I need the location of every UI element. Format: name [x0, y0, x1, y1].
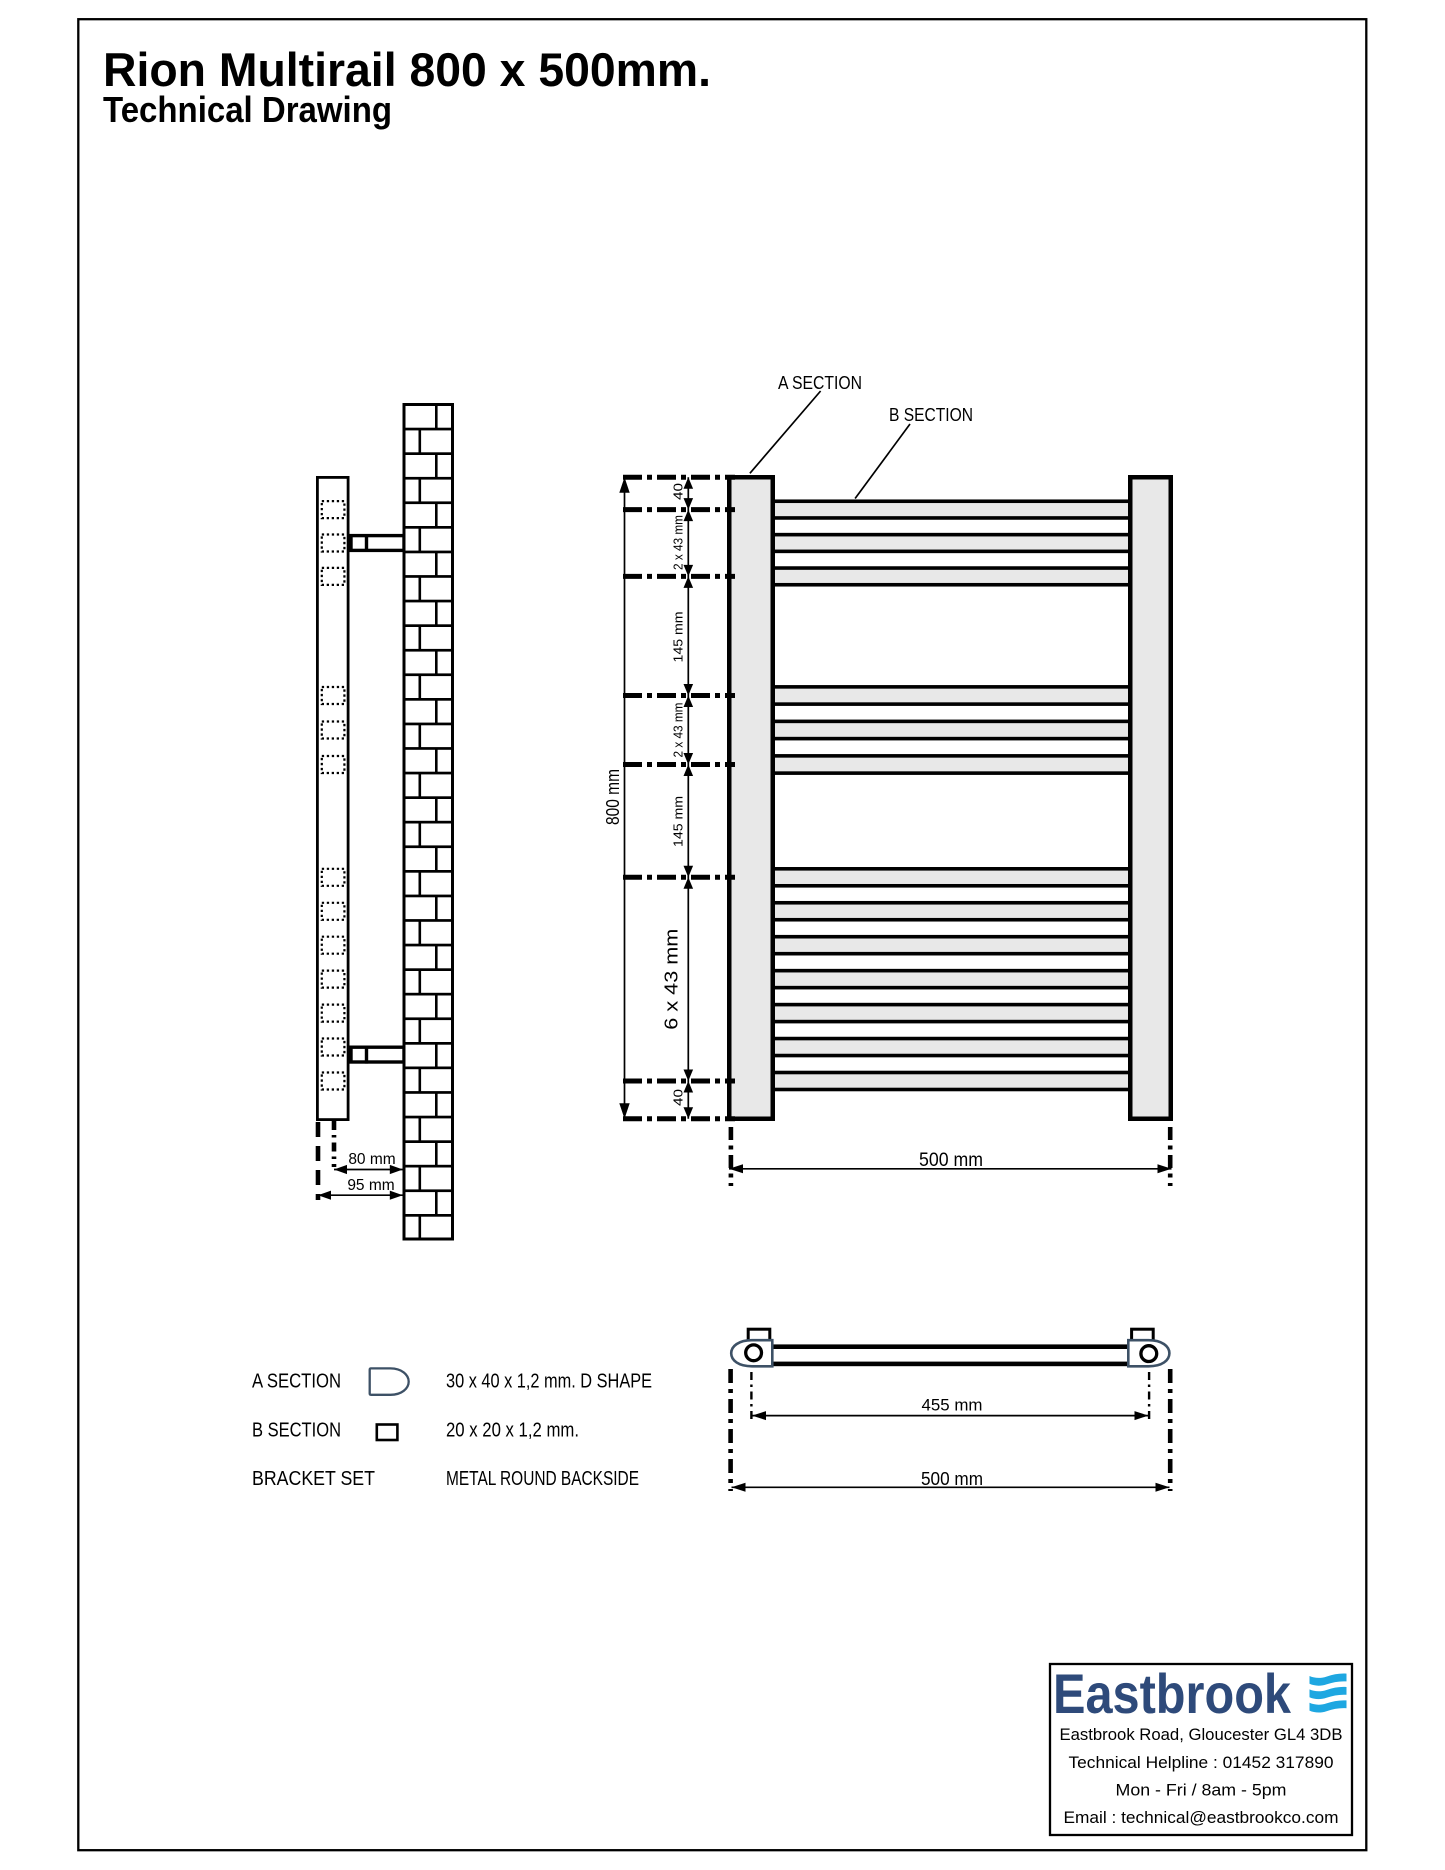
svg-text:Mon - Fri / 8am - 5pm: Mon - Fri / 8am - 5pm: [1116, 1781, 1287, 1800]
svg-text:2 x 43 mm: 2 x 43 mm: [671, 515, 686, 570]
svg-text:B SECTION: B SECTION: [889, 404, 973, 425]
svg-text:500 mm: 500 mm: [919, 1149, 983, 1171]
svg-text:800 mm: 800 mm: [602, 769, 623, 825]
svg-text:40: 40: [671, 483, 686, 500]
svg-text:BRACKET SET: BRACKET SET: [252, 1468, 375, 1490]
svg-text:6 x 43 mm: 6 x 43 mm: [661, 929, 682, 1030]
svg-text:455 mm: 455 mm: [922, 1397, 983, 1415]
svg-text:145 mm: 145 mm: [671, 612, 686, 663]
svg-text:A SECTION: A SECTION: [252, 1371, 341, 1393]
svg-text:A SECTION: A SECTION: [778, 372, 862, 393]
svg-text:Eastbrook: Eastbrook: [1053, 1662, 1292, 1725]
svg-text:B SECTION: B SECTION: [252, 1420, 341, 1442]
svg-text:40: 40: [671, 1089, 686, 1106]
svg-text:145 mm: 145 mm: [671, 796, 686, 847]
svg-text:95 mm: 95 mm: [347, 1177, 394, 1194]
svg-text:500 mm: 500 mm: [921, 1468, 983, 1489]
svg-text:Technical Drawing: Technical Drawing: [103, 89, 392, 130]
svg-text:Eastbrook Road, Gloucester GL4: Eastbrook Road, Gloucester GL4 3DB: [1060, 1725, 1343, 1744]
svg-text:80 mm: 80 mm: [348, 1151, 395, 1168]
svg-text:30 x 40 x 1,2 mm. D SHAPE: 30 x 40 x 1,2 mm. D SHAPE: [446, 1371, 652, 1393]
svg-text:Technical Helpline : 01452 317: Technical Helpline : 01452 317890: [1069, 1753, 1334, 1772]
svg-text:METAL ROUND BACKSIDE: METAL ROUND BACKSIDE: [446, 1468, 639, 1490]
svg-text:2 x 43 mm: 2 x 43 mm: [671, 703, 686, 758]
svg-text:20 x 20 x 1,2 mm.: 20 x 20 x 1,2 mm.: [446, 1420, 579, 1442]
svg-text:Email : technical@eastbrookco.: Email : technical@eastbrookco.com: [1064, 1808, 1339, 1827]
